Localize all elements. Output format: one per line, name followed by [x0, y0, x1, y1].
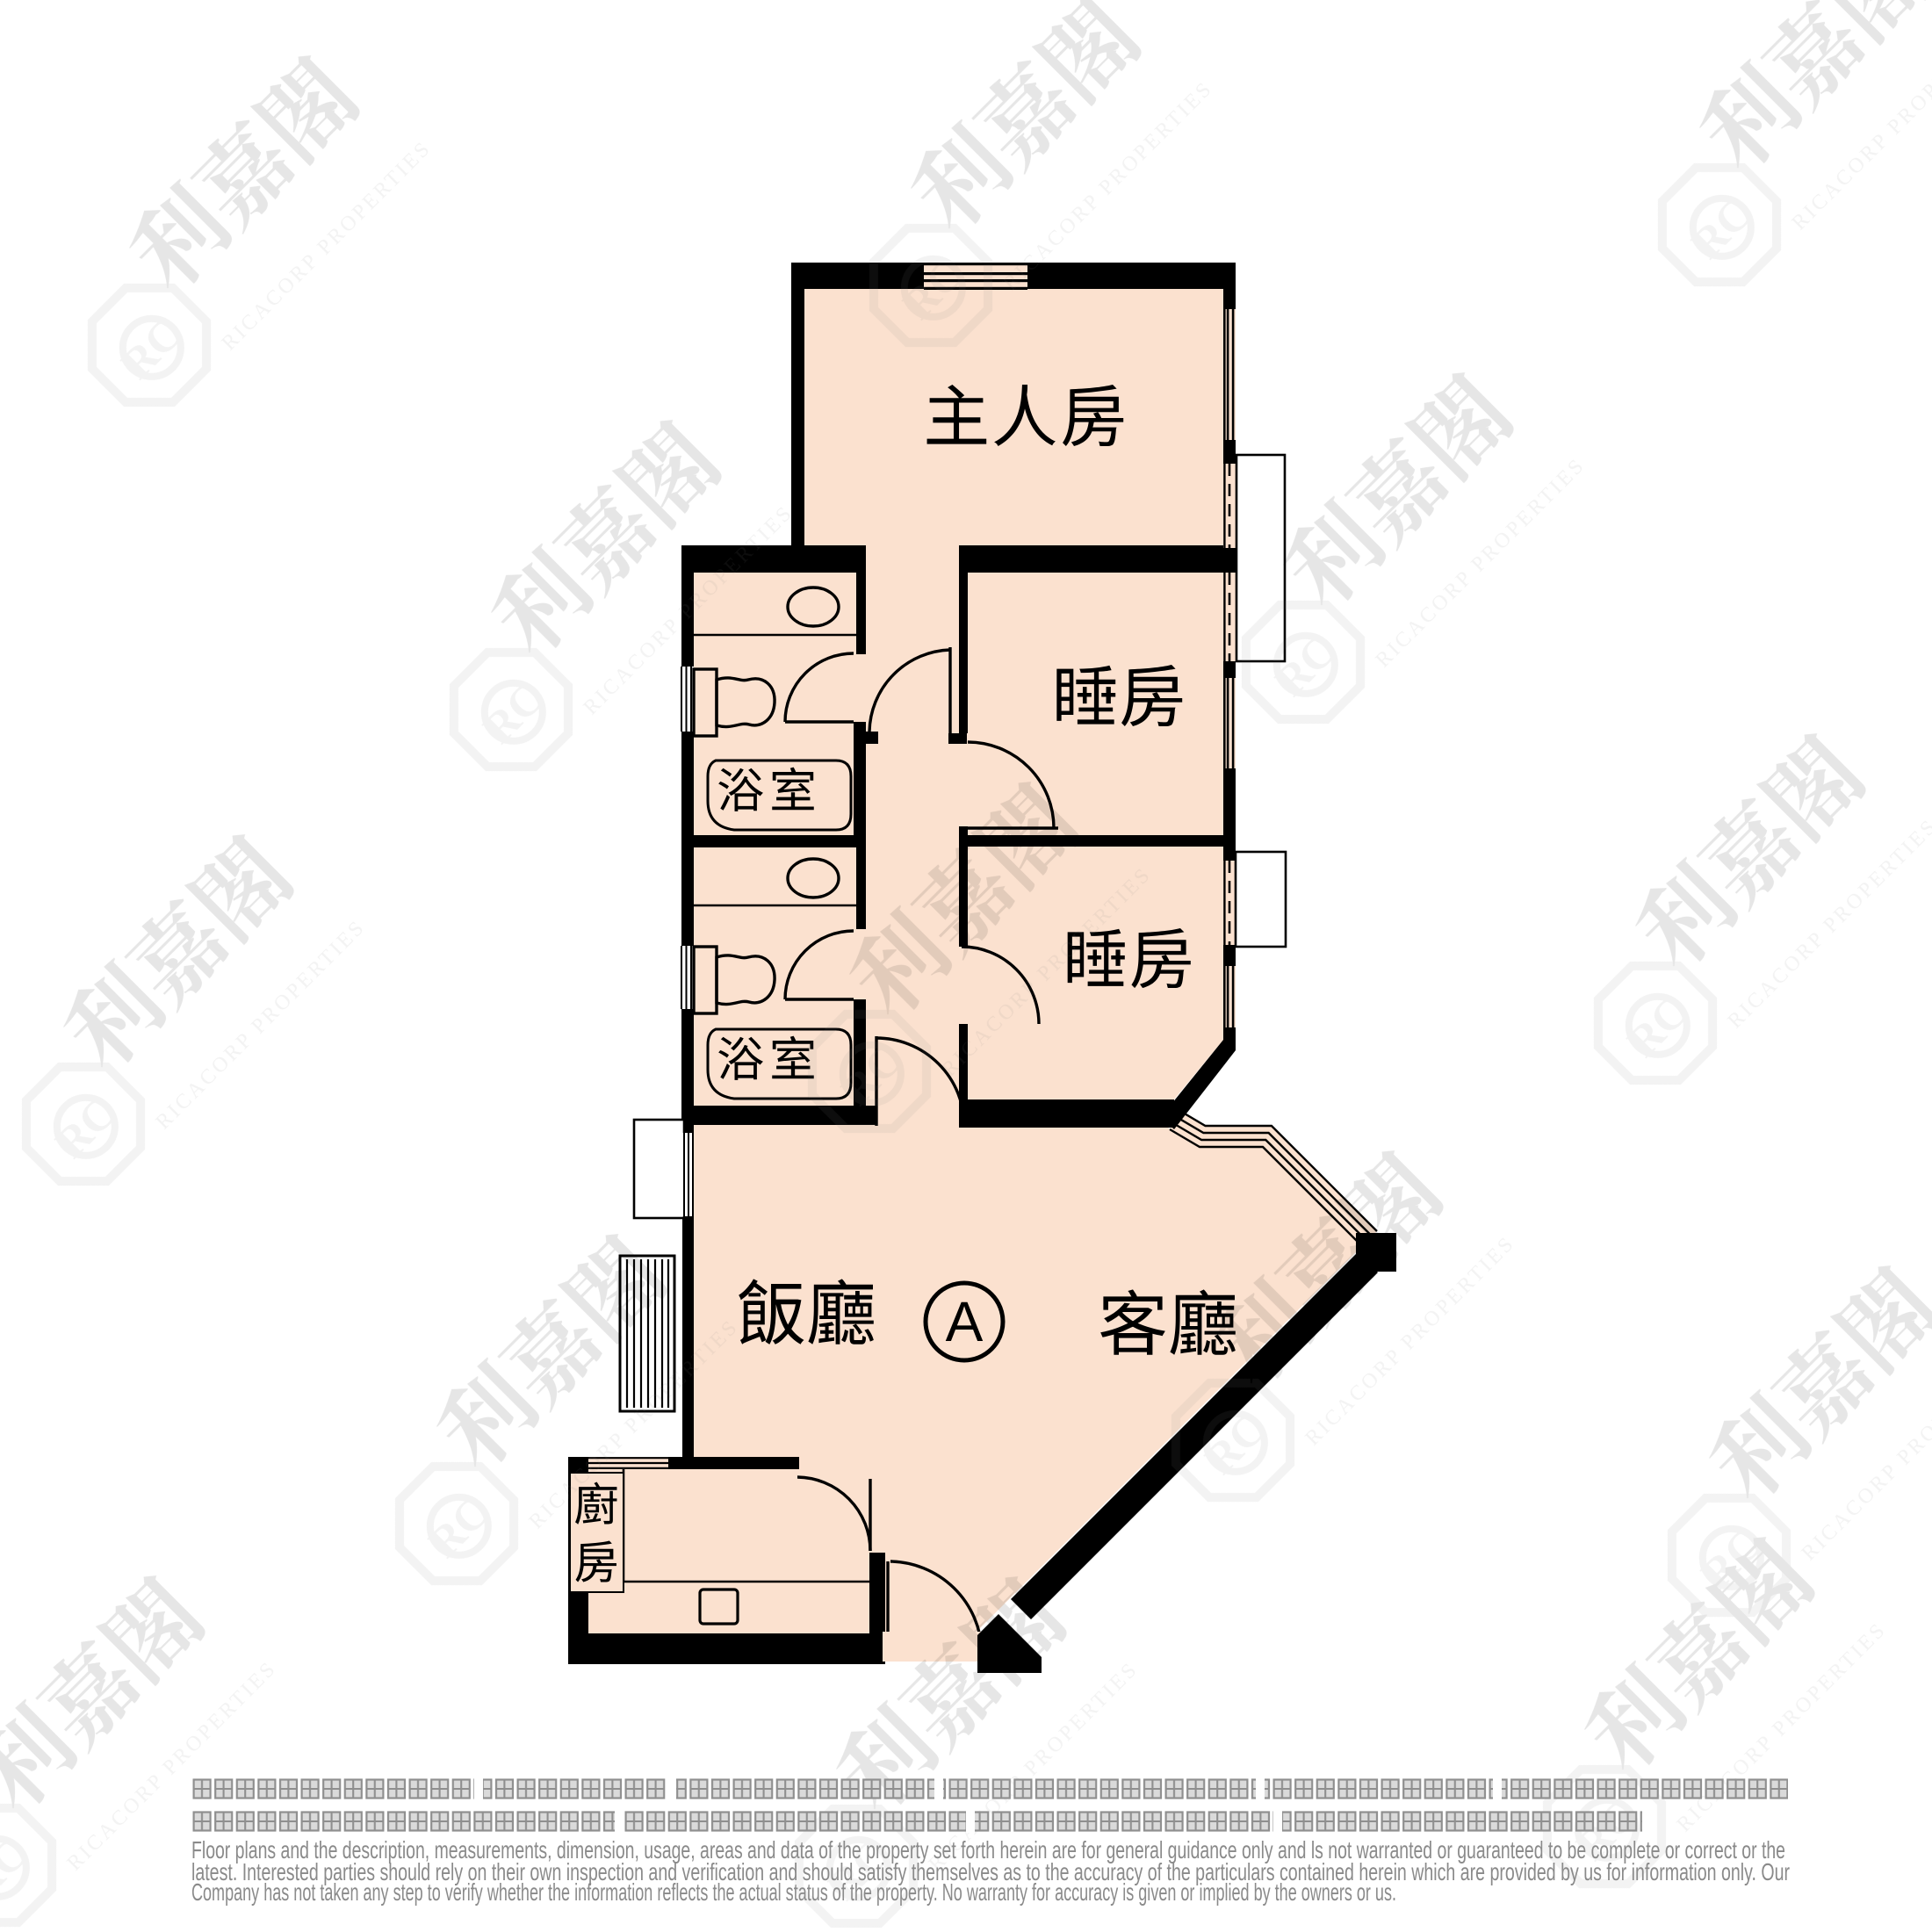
svg-text:Company has not taken any step: Company has not taken any step to verify… — [191, 1878, 1396, 1906]
svg-text:A: A — [946, 1290, 984, 1353]
